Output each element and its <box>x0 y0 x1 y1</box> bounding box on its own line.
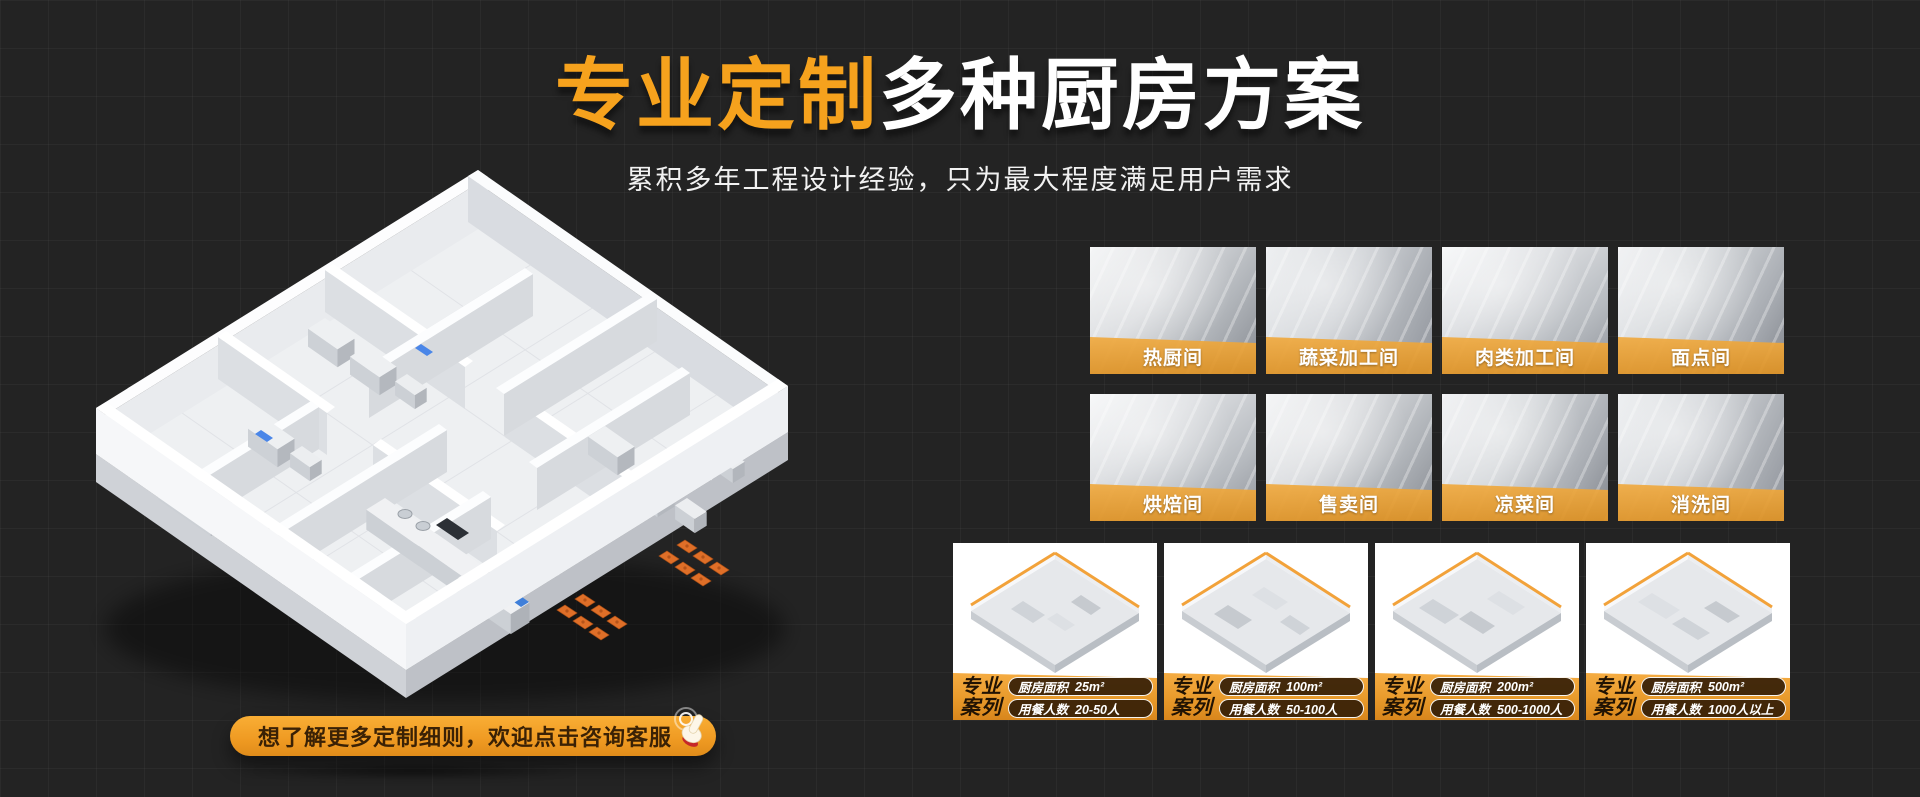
case-info-bar: 专业 案列 厨房面积 500m² 用餐人数 1000人以上 <box>1586 673 1790 720</box>
room-label: 凉菜间 <box>1495 490 1555 517</box>
case-card-100m2: 专业 案列 厨房面积 100m² 用餐人数 50-100人 <box>1164 543 1368 720</box>
kitchen-area-value: 200m² <box>1497 680 1533 694</box>
diners-count-value: 20-50人 <box>1075 699 1119 718</box>
diners-count-label: 用餐人数 <box>1440 699 1490 718</box>
room-label: 烘焙间 <box>1143 490 1203 517</box>
room-label-band: 售卖间 <box>1266 484 1432 521</box>
kitchen-floorplan-illustration <box>85 168 805 713</box>
kitchen-area-label: 厨房面积 <box>1440 677 1490 696</box>
kitchen-solutions-banner: 专业定制多种厨房方案 累积多年工程设计经验，只为最大程度满足用户需求 <box>0 0 1920 797</box>
room-tile-hot-kitchen: 热厨间 <box>1090 247 1256 374</box>
room-label-band: 热厨间 <box>1090 337 1256 374</box>
diners-count-pill: 用餐人数 1000人以上 <box>1641 699 1786 718</box>
case-badge: 专业 案列 <box>1593 677 1635 718</box>
room-label-band: 肉类加工间 <box>1442 337 1608 374</box>
consult-service-button[interactable]: 想了解更多定制细则，欢迎点击咨询客服 <box>230 716 716 756</box>
case-badge-line1: 专业 <box>960 677 1002 697</box>
diners-count-pill: 用餐人数 50-100人 <box>1219 699 1364 718</box>
kitchen-area-label: 厨房面积 <box>1651 677 1701 696</box>
page-title: 专业定制多种厨房方案 <box>0 56 1920 134</box>
kitchen-area-pill: 厨房面积 200m² <box>1430 677 1575 696</box>
room-label-band: 消洗间 <box>1618 484 1784 521</box>
hand-click-icon <box>668 706 720 758</box>
room-tile-dishwashing: 消洗间 <box>1618 394 1784 521</box>
cta-reflection-shadow <box>250 762 580 780</box>
case-badge-line1: 专业 <box>1382 677 1424 697</box>
room-tile-vegetable-processing: 蔬菜加工间 <box>1266 247 1432 374</box>
case-card-500m2: 专业 案列 厨房面积 500m² 用餐人数 1000人以上 <box>1586 543 1790 720</box>
kitchen-area-value: 500m² <box>1708 680 1744 694</box>
case-card-25m2: 专业 案列 厨房面积 25m² 用餐人数 20-50人 <box>953 543 1157 720</box>
case-badge-line2: 案列 <box>1382 698 1424 718</box>
room-label: 售卖间 <box>1319 490 1379 517</box>
room-tile-selling: 售卖间 <box>1266 394 1432 521</box>
case-badge-line1: 专业 <box>1171 677 1213 697</box>
diners-count-value: 50-100人 <box>1286 699 1337 718</box>
kitchen-area-label: 厨房面积 <box>1018 677 1068 696</box>
room-tile-cold-dishes: 凉菜间 <box>1442 394 1608 521</box>
case-badge: 专业 案列 <box>1171 677 1213 718</box>
diners-count-label: 用餐人数 <box>1018 699 1068 718</box>
room-label: 面点间 <box>1671 343 1731 370</box>
room-label: 消洗间 <box>1671 490 1731 517</box>
room-tile-baking: 烘焙间 <box>1090 394 1256 521</box>
case-badge-line2: 案列 <box>1171 698 1213 718</box>
kitchen-area-value: 100m² <box>1286 680 1322 694</box>
case-badge-line1: 专业 <box>1593 677 1635 697</box>
page-title-rest: 多种厨房方案 <box>879 51 1365 139</box>
room-label-band: 蔬菜加工间 <box>1266 337 1432 374</box>
case-info-bar: 专业 案列 厨房面积 25m² 用餐人数 20-50人 <box>953 673 1157 720</box>
room-label: 蔬菜加工间 <box>1299 343 1399 370</box>
case-info-bar: 专业 案列 厨房面积 100m² 用餐人数 50-100人 <box>1164 673 1368 720</box>
case-card-200m2: 专业 案列 厨房面积 200m² 用餐人数 500-1000人 <box>1375 543 1579 720</box>
page-title-highlight: 专业定制 <box>555 51 879 139</box>
case-floorplan-illustration <box>953 543 1157 678</box>
room-tile-pastry: 面点间 <box>1618 247 1784 374</box>
room-tile-meat-processing: 肉类加工间 <box>1442 247 1608 374</box>
case-cards-row: 专业 案列 厨房面积 25m² 用餐人数 20-50人 <box>953 543 1790 720</box>
case-badge: 专业 案列 <box>960 677 1002 718</box>
room-tiles-grid: 热厨间 蔬菜加工间 肉类加工间 面点间 烘焙间 售卖间 凉菜间 消洗间 <box>1090 247 1784 521</box>
case-info-bar: 专业 案列 厨房面积 200m² 用餐人数 500-1000人 <box>1375 673 1579 720</box>
kitchen-area-pill: 厨房面积 500m² <box>1641 677 1786 696</box>
case-pills: 厨房面积 25m² 用餐人数 20-50人 <box>1008 677 1153 718</box>
diners-count-label: 用餐人数 <box>1229 699 1279 718</box>
diners-count-label: 用餐人数 <box>1651 699 1701 718</box>
case-badge-line2: 案列 <box>960 698 1002 718</box>
case-floorplan-illustration <box>1375 543 1579 678</box>
case-badge-line2: 案列 <box>1593 698 1635 718</box>
kitchen-area-value: 25m² <box>1075 680 1104 694</box>
diners-count-pill: 用餐人数 20-50人 <box>1008 699 1153 718</box>
room-label: 肉类加工间 <box>1475 343 1575 370</box>
case-floorplan-illustration <box>1586 543 1790 678</box>
case-floorplan-illustration <box>1164 543 1368 678</box>
consult-service-label: 想了解更多定制细则，欢迎点击咨询客服 <box>258 720 672 752</box>
kitchen-area-label: 厨房面积 <box>1229 677 1279 696</box>
kitchen-area-pill: 厨房面积 25m² <box>1008 677 1153 696</box>
case-pills: 厨房面积 500m² 用餐人数 1000人以上 <box>1641 677 1786 718</box>
room-label-band: 凉菜间 <box>1442 484 1608 521</box>
room-label-band: 面点间 <box>1618 337 1784 374</box>
diners-count-value: 500-1000人 <box>1497 699 1562 718</box>
room-label: 热厨间 <box>1143 343 1203 370</box>
case-pills: 厨房面积 100m² 用餐人数 50-100人 <box>1219 677 1364 718</box>
room-label-band: 烘焙间 <box>1090 484 1256 521</box>
diners-count-value: 1000人以上 <box>1708 699 1773 718</box>
kitchen-area-pill: 厨房面积 100m² <box>1219 677 1364 696</box>
case-badge: 专业 案列 <box>1382 677 1424 718</box>
diners-count-pill: 用餐人数 500-1000人 <box>1430 699 1575 718</box>
case-pills: 厨房面积 200m² 用餐人数 500-1000人 <box>1430 677 1575 718</box>
